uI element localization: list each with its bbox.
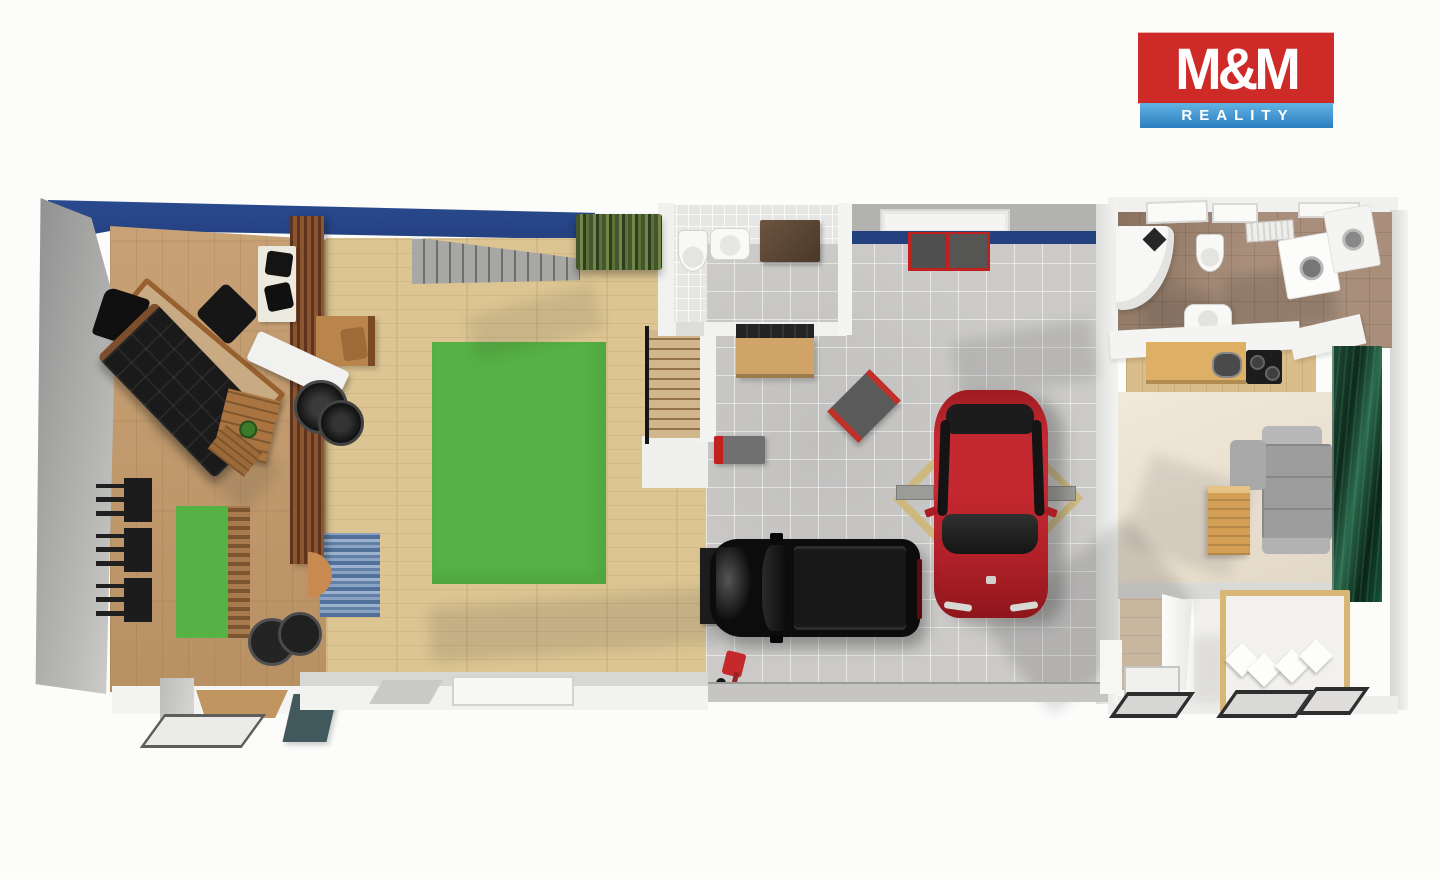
car-lift-arm (896, 485, 934, 500)
weight-plate (318, 400, 364, 446)
garage-door (700, 682, 1108, 702)
suv-hood-highlight (716, 547, 756, 629)
suv-mirror (770, 635, 783, 643)
slat-rack (228, 506, 250, 638)
wall-rack (94, 578, 152, 622)
skylight (1212, 203, 1258, 223)
car-headlight (1010, 601, 1039, 612)
side-seat (340, 326, 368, 361)
suv-windshield (762, 545, 788, 631)
washer-dryer-stack (1274, 204, 1384, 300)
car-side-window (1031, 420, 1044, 516)
burner-icon (1250, 355, 1265, 370)
wood-side-table (1208, 486, 1250, 555)
right-outer-wall (1390, 210, 1408, 710)
black-chair (264, 250, 293, 277)
car-side-window (937, 420, 950, 516)
red-tool-box (714, 436, 765, 464)
entrance-doormat (140, 714, 267, 748)
mm-reality-logo: M&M REALITY (1138, 34, 1334, 128)
suv-mirror (770, 533, 783, 541)
wall-rack (94, 528, 152, 572)
red-cabinet (946, 232, 990, 271)
sofa-chaise (1230, 440, 1266, 490)
cooktop (1246, 350, 1282, 384)
car-headlight (944, 601, 973, 612)
car-windshield (942, 514, 1038, 554)
sofa-arm (1262, 538, 1330, 554)
wc-right-wall (838, 203, 852, 335)
hall-garage-wall (700, 324, 716, 442)
wall-rack (94, 478, 152, 522)
wall-sink (710, 228, 750, 260)
black-ottoman (278, 612, 322, 656)
red-cabinet (908, 232, 950, 271)
floor-plan-render: M&M REALITY (0, 0, 1440, 879)
green-exercise-mat (176, 506, 228, 638)
washer-door (1298, 254, 1326, 282)
gray-corner-sofa (1262, 444, 1332, 540)
garage-right-wall (1096, 204, 1118, 704)
stair-landing (642, 436, 708, 488)
toilet (678, 230, 708, 272)
logo-reality-text: REALITY (1140, 103, 1333, 128)
workbench (736, 338, 814, 378)
black-suv (710, 539, 920, 637)
shower-wall (1100, 640, 1122, 694)
stairwell-down (648, 330, 706, 438)
green-rug (432, 342, 606, 584)
dryer-door (1340, 227, 1365, 252)
green-wall-art (1332, 346, 1382, 602)
dark-cabinet (760, 220, 820, 262)
car-rear-glass (946, 404, 1034, 434)
potted-plants (576, 214, 662, 270)
black-chair (264, 282, 295, 313)
logo-mm-text: M&M (1138, 33, 1334, 104)
wall-toilet (1196, 234, 1224, 272)
tool-wall (736, 324, 814, 338)
suv-roof (794, 546, 906, 630)
stairwell-railing (645, 326, 649, 444)
red-car (934, 390, 1048, 618)
kitchen-sink (1212, 352, 1242, 378)
suv-taillight (917, 559, 922, 619)
burner-icon (1265, 366, 1280, 381)
wc-door-opening (676, 322, 704, 336)
skylight (1146, 200, 1209, 224)
car-badge (986, 576, 996, 584)
outside-step (452, 676, 574, 706)
